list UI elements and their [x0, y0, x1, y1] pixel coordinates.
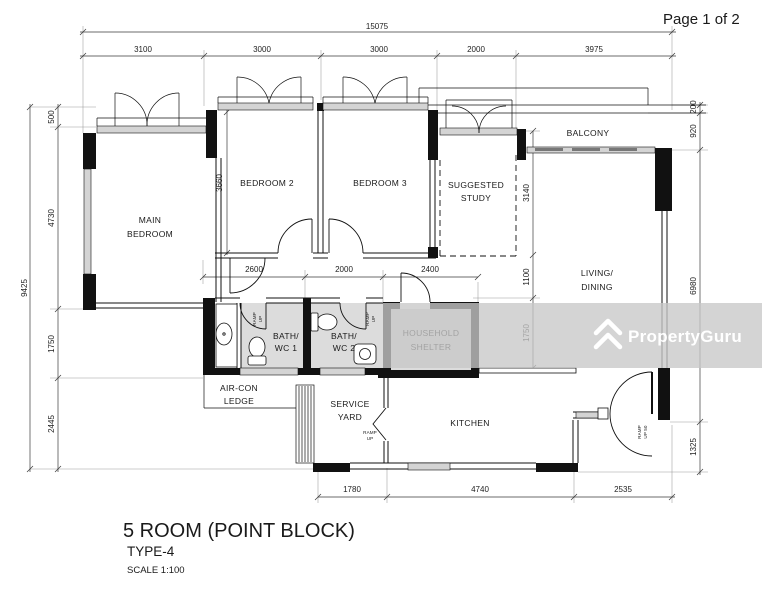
label-service-2: YARD [338, 412, 362, 422]
label-ramp-service-2: UP [367, 436, 374, 441]
dim-bottom-3: 2535 [614, 485, 632, 494]
plan-scale: SCALE 1:100 [127, 565, 185, 576]
label-bedroom-3: BEDROOM 3 [353, 178, 407, 188]
toilet-icon [317, 314, 337, 330]
label-service-1: SERVICE [330, 399, 369, 409]
dim-hall-2: 2000 [335, 265, 353, 274]
label-ramp-service-1: RAMP [363, 430, 377, 435]
dim-bottom-2: 4740 [471, 485, 489, 494]
label-study-2: STUDY [461, 193, 491, 203]
label-main-bedroom-1: MAIN [139, 215, 161, 225]
dim-left-1: 500 [47, 110, 56, 124]
plan-type: TYPE-4 [127, 544, 175, 559]
plan-title: 5 ROOM (POINT BLOCK) [123, 520, 355, 542]
dim-top-4: 2000 [467, 45, 485, 54]
label-living-1: LIVING/ [581, 268, 614, 278]
dimension-labels: 15075 3100 3000 3000 2000 3975 9425 500 … [20, 22, 698, 494]
label-kitchen: KITCHEN [450, 418, 489, 428]
dim-top-5: 3975 [585, 45, 603, 54]
label-bath1-1: BATH/ [273, 331, 299, 341]
label-bath2-1: BATH/ [331, 331, 357, 341]
toilet-icon [249, 337, 265, 357]
label-bath1-2: WC 1 [275, 343, 297, 353]
watermark-brand-text: PropertyGuru [628, 327, 742, 346]
dim-hall-1: 2600 [245, 265, 263, 274]
label-ramp-bath2-1: RAMP [365, 312, 370, 326]
dim-right-1: 200 [689, 100, 698, 114]
label-living-2: DINING [581, 282, 613, 292]
label-ramp-bath1-2: UP [258, 316, 263, 323]
label-bath2-2: WC 2 [333, 343, 355, 353]
dim-right-4: 1325 [689, 438, 698, 456]
dim-left-4: 2445 [47, 415, 56, 433]
study-dashed-boundary [440, 155, 516, 256]
walls [83, 88, 706, 472]
label-aircon-1: AIR-CON [220, 383, 258, 393]
dim-right-2: 920 [689, 124, 698, 138]
label-balcony: BALCONY [567, 128, 610, 138]
label-aircon-2: LEDGE [224, 396, 254, 406]
floorplan-page: 15075 3100 3000 3000 2000 3975 9425 500 … [0, 0, 762, 600]
label-ramp-bath1-1: RAMP [252, 312, 257, 326]
label-ramp-entry-1: RAMP [637, 425, 642, 439]
label-bedroom-2: BEDROOM 2 [240, 178, 294, 188]
page-indicator: Page 1 of 2 [663, 11, 740, 28]
floorplan-drawing: 15075 3100 3000 3000 2000 3975 9425 500 … [0, 0, 762, 600]
dim-left-3: 1750 [47, 335, 56, 353]
dim-hall-3: 2400 [421, 265, 439, 274]
watermark: PropertyGuru [383, 303, 762, 368]
label-ramp-entry-2: UP 50 [643, 425, 648, 439]
dim-bottom-1: 1780 [343, 485, 361, 494]
dim-top-3: 3000 [370, 45, 388, 54]
label-main-bedroom-2: BEDROOM [127, 229, 173, 239]
label-ramp-bath2-2: UP [371, 316, 376, 323]
room-labels: MAIN BEDROOM BEDROOM 2 BEDROOM 3 SUGGEST… [127, 128, 648, 441]
dim-right-3: 6980 [689, 277, 698, 295]
title-block: 5 ROOM (POINT BLOCK) TYPE-4 SCALE 1:100 [123, 520, 355, 576]
dim-study-height: 3140 [522, 184, 531, 202]
dim-foyer-height: 1100 [522, 268, 531, 286]
label-study-1: SUGGESTED [448, 180, 504, 190]
dim-top-2: 3000 [253, 45, 271, 54]
dim-top-1: 3100 [134, 45, 152, 54]
dim-left-total: 9425 [20, 279, 29, 297]
dim-left-2: 4730 [47, 209, 56, 227]
dim-total-width: 15075 [366, 22, 389, 31]
